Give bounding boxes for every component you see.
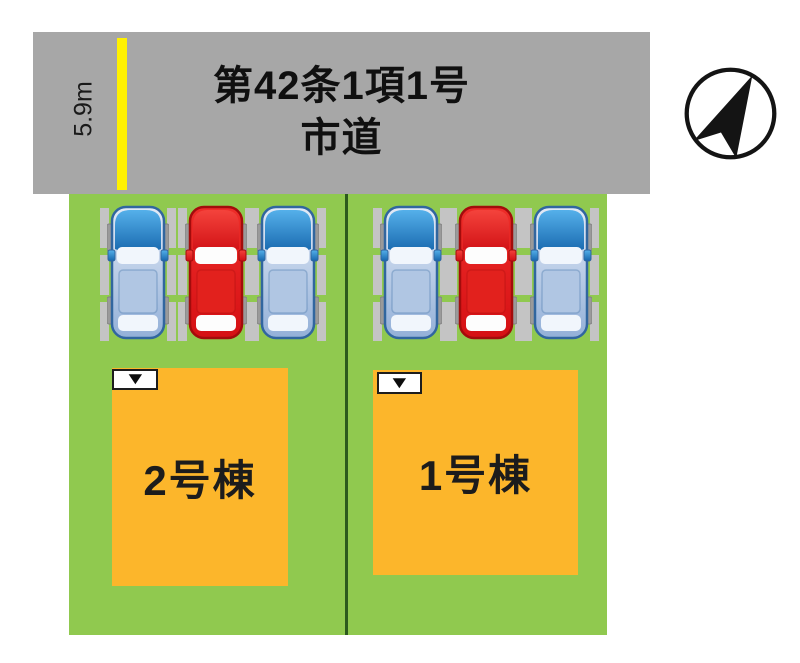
- parking-car-blue: [250, 204, 326, 341]
- compass-north-arrow-icon: [681, 64, 780, 163]
- entrance-marker-building-2: ▼: [112, 369, 158, 390]
- parking-car-red: [178, 204, 254, 341]
- car-top-view-icon: [185, 204, 247, 341]
- car-top-view-icon: [380, 204, 442, 341]
- car-top-view-icon: [107, 204, 169, 341]
- car-top-view-icon: [530, 204, 592, 341]
- site-plan: 5.9m 第42条1項1号 市道 2号棟 1号棟 ▼ ▼: [0, 0, 800, 663]
- car-top-view-icon: [455, 204, 517, 341]
- building-2-label: 2号棟: [143, 447, 256, 508]
- building-1: 1号棟: [373, 370, 578, 575]
- parking-car-red: [448, 204, 524, 341]
- parking-car-blue: [100, 204, 176, 341]
- entrance-marker-building-1: ▼: [377, 372, 422, 394]
- plot-divider-line: [345, 194, 348, 635]
- parking-car-blue: [523, 204, 599, 341]
- building-1-label: 1号棟: [419, 442, 532, 503]
- down-triangle-icon: ▼: [388, 374, 411, 391]
- road-name-label: 第42条1項1号 市道: [33, 60, 650, 164]
- down-triangle-icon: ▼: [124, 370, 147, 387]
- parking-car-blue: [373, 204, 449, 341]
- building-2: 2号棟: [112, 368, 288, 586]
- car-top-view-icon: [257, 204, 319, 341]
- road-name-line2: 市道: [33, 112, 650, 164]
- road: 5.9m 第42条1項1号 市道: [33, 32, 650, 194]
- road-name-line1: 第42条1項1号: [33, 60, 650, 112]
